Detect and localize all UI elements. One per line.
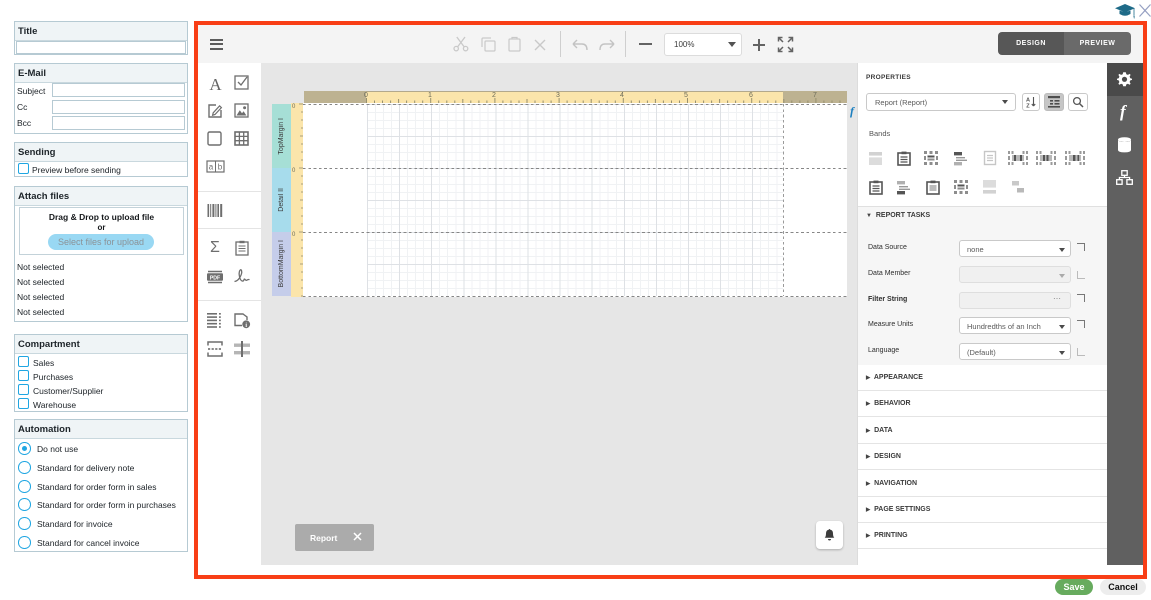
svg-text:Z: Z	[1026, 103, 1030, 108]
svg-text:a: a	[209, 163, 214, 172]
svg-text:b: b	[218, 163, 223, 172]
svg-text:PDF: PDF	[210, 275, 220, 281]
